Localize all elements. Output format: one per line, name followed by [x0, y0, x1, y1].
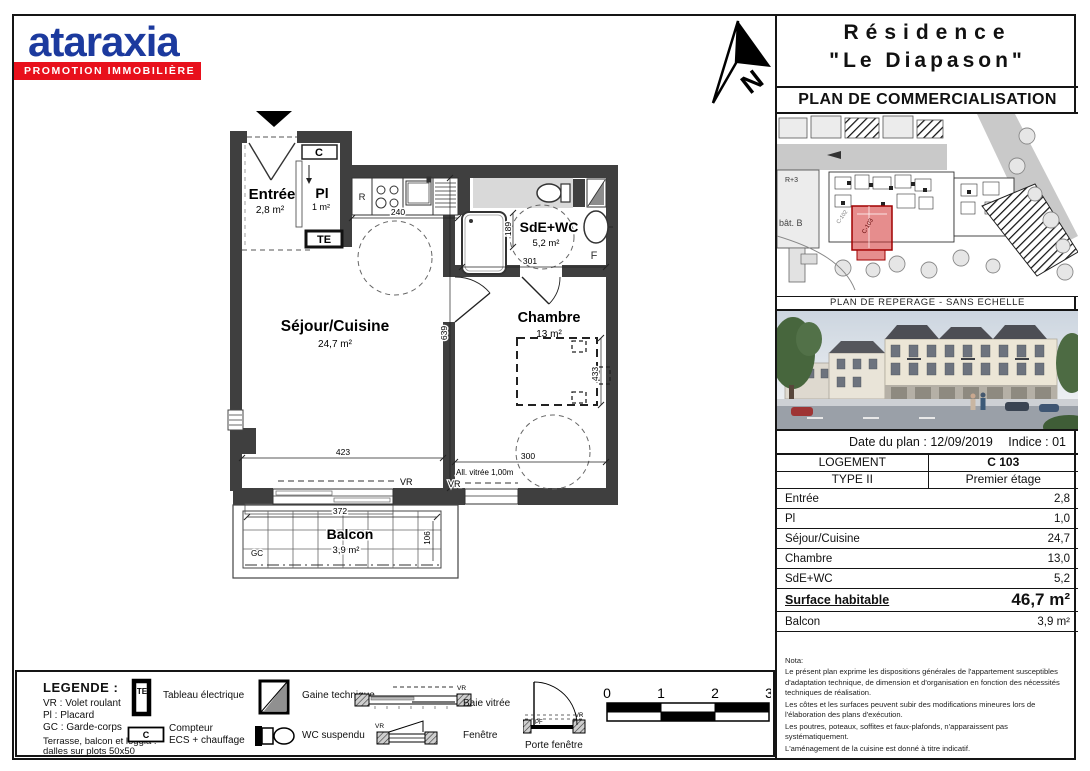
logement-label: LOGEMENT	[777, 455, 928, 471]
svg-text:TE: TE	[137, 687, 148, 696]
svg-text:639: 639	[439, 326, 449, 340]
table-header-logement: LOGEMENT C 103	[777, 455, 1078, 472]
porte-fenetre-icon: PF VR	[523, 676, 587, 738]
residence-title-line1: Résidence	[777, 21, 1078, 45]
floor-plan: Entrée 2,8 m² C Pl 1 m² TE	[225, 105, 627, 592]
indice: Indice : 01	[1008, 435, 1066, 449]
building-render	[777, 311, 1078, 431]
room-balcon: 372 106 Balcon 3,9 m² GC	[233, 505, 458, 578]
gaine-technique-icon	[257, 678, 291, 716]
garde-corps-tag: GC	[251, 549, 263, 558]
svg-text:24,7 m²: 24,7 m²	[318, 339, 353, 350]
wc-suspendu-icon	[253, 724, 299, 748]
tableau-electrique-icon: TE	[130, 678, 154, 718]
svg-text:5,2 m²: 5,2 m²	[533, 238, 560, 249]
svg-text:300: 300	[521, 451, 535, 461]
room-placard: C Pl 1 m² TE	[296, 145, 342, 247]
svg-text:VR: VR	[400, 477, 413, 487]
svg-text:433: 433	[590, 367, 600, 381]
north-label: N	[735, 64, 769, 100]
table-row: SdE+WC 5,2	[777, 569, 1078, 589]
svg-text:372: 372	[333, 506, 347, 516]
svg-text:106: 106	[423, 531, 432, 545]
svg-text:VR: VR	[375, 723, 384, 730]
compteur-tag: C	[315, 147, 323, 159]
svg-text:Balcon: Balcon	[327, 526, 374, 542]
svg-text:240: 240	[391, 207, 405, 217]
svg-text:Pl: Pl	[315, 185, 328, 201]
date-of-plan: Date du plan : 12/09/2019	[849, 435, 993, 449]
type-label: TYPE II	[777, 472, 928, 488]
legend-title: LEGENDE :	[43, 680, 118, 695]
svg-text:189: 189	[503, 222, 513, 236]
svg-text:301: 301	[523, 256, 537, 266]
room-sde-wc: SdE+WC 5,2 m² F	[462, 178, 613, 304]
title-block: Résidence "Le Diapason"	[777, 14, 1078, 88]
svg-text:Séjour/Cuisine: Séjour/Cuisine	[281, 318, 390, 335]
logo-tagline: PROMOTION IMMOBILIÈRE	[14, 62, 201, 80]
svg-text:VR: VR	[575, 713, 584, 719]
scale-bar: 0 1 2 3	[599, 684, 771, 730]
unit-number: C 103	[928, 455, 1079, 471]
svg-text:1 m²: 1 m²	[312, 202, 330, 212]
plan-type-subtitle: PLAN DE COMMERCIALISATION	[777, 88, 1078, 114]
table-row: Pl 1,0	[777, 509, 1078, 529]
svg-text:Entrée: Entrée	[249, 186, 296, 203]
svg-text:SdE+WC: SdE+WC	[520, 219, 579, 235]
svg-text:2,8 m²: 2,8 m²	[256, 205, 285, 216]
surface-habitable-row: Surface habitable 46,7 m²	[777, 589, 1078, 612]
svg-text:3: 3	[765, 685, 771, 701]
date-bar: Date du plan : 12/09/2019 Indice : 01	[777, 431, 1078, 455]
svg-text:PF: PF	[535, 720, 543, 726]
site-plan-drawing: R+3 bât. B	[777, 114, 1078, 296]
plan-sheet: ataraxia PROMOTION IMMOBILIÈRE N	[0, 0, 1090, 771]
nota-title: Nota:	[785, 656, 1072, 666]
svg-text:Chambre: Chambre	[518, 310, 581, 326]
entrance-marker-icon	[256, 111, 292, 127]
svg-text:VR: VR	[448, 479, 461, 489]
table-row: Séjour/Cuisine 24,7	[777, 529, 1078, 549]
svg-text:423: 423	[336, 447, 350, 457]
floor-label: Premier étage	[928, 472, 1079, 488]
fenetre-icon: VR	[373, 714, 441, 750]
fridge-tag: R	[359, 192, 366, 203]
compteur-icon: C	[127, 726, 165, 743]
svg-text:2: 2	[711, 685, 719, 701]
nota: Nota: Le présent plan exprime les dispos…	[785, 656, 1072, 755]
site-plan-caption: PLAN DE REPERAGE - SANS ECHELLE	[777, 296, 1078, 311]
svg-text:0: 0	[603, 685, 611, 701]
legend-box: LEGENDE : VR : Volet roulant Pl : Placar…	[15, 670, 775, 757]
allege-label: All. vitrée 1,00m	[456, 468, 514, 477]
table-row: Entrée 2,8	[777, 489, 1078, 509]
baie-vitree-icon: VR	[353, 680, 473, 712]
table-header-type: TYPE II Premier étage	[777, 472, 1078, 489]
tableau-electrique-tag: TE	[317, 234, 331, 246]
f-tag: F	[591, 250, 598, 262]
building-render-image	[777, 311, 1078, 431]
ataraxia-logo: ataraxia	[28, 18, 179, 66]
side-window	[228, 410, 243, 430]
site-plan: R+3 bât. B	[777, 114, 1078, 296]
svg-text:3,9 m²: 3,9 m²	[333, 545, 360, 556]
svg-text:C: C	[143, 730, 150, 740]
svg-text:1: 1	[657, 685, 665, 701]
notes-area: Nota: Le présent plan exprime les dispos…	[777, 632, 1078, 760]
north-arrow-icon: N	[693, 13, 778, 113]
balcon-row: Balcon 3,9 m²	[777, 612, 1078, 632]
svg-text:bât. B: bât. B	[779, 218, 803, 228]
table-row: Chambre 13,0	[777, 549, 1078, 569]
svg-text:R+3: R+3	[785, 177, 798, 184]
residence-title-line2: "Le Diapason"	[777, 49, 1078, 73]
svg-text:VR: VR	[457, 685, 466, 692]
right-panel: Résidence "Le Diapason" PLAN DE COMMERCI…	[775, 14, 1078, 760]
